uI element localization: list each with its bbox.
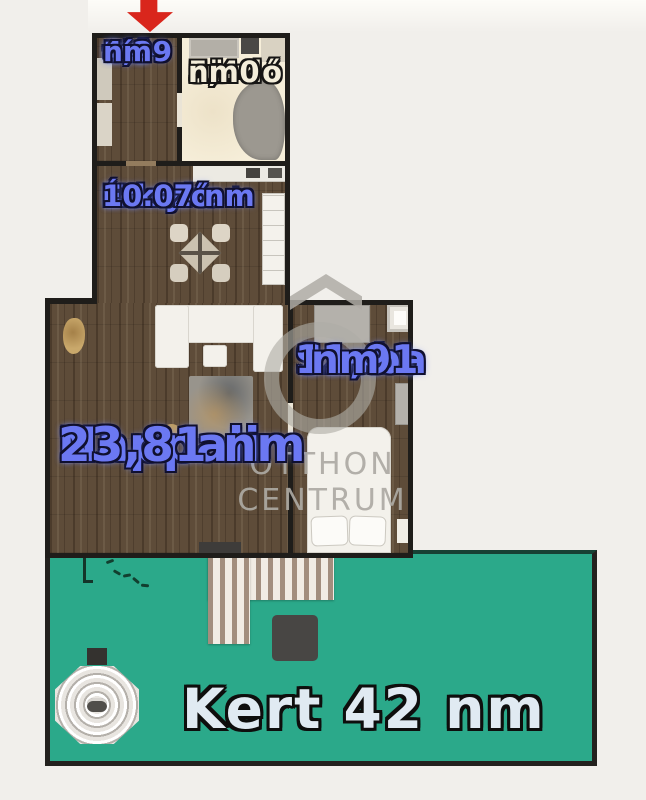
wall-right-upper [285,33,290,305]
fence-line [83,556,86,583]
dining-chair [170,264,188,282]
wall-left-upper [92,33,97,304]
awning-rug [208,556,250,644]
door-eloter-konyha [126,161,156,166]
washing-machine [241,38,259,54]
bathtub [233,80,285,160]
door-eloter-furdo [177,93,182,127]
label-konyha-line: 10.07 nm [102,180,255,214]
sofa-chaise [155,305,189,368]
tall-cabinet [262,193,285,285]
watermark-text-line2: CENTRUM [235,483,410,518]
fence-line [83,580,93,583]
parasol-base [87,648,107,665]
ottoman [203,345,227,367]
label-kert: Kert 42 nm [182,678,546,742]
label-szoba-line: nm [295,338,379,384]
background-highlight [88,0,646,32]
label-furdo-line: nm [188,56,239,90]
label-eloter-line: nm [103,36,152,68]
pillow [348,515,386,546]
floor-plan-canvas: OTTHON CENTRUM Elő- tér 4,29 nm Fürdő 5,… [0,0,646,800]
cooktop [246,168,260,178]
dining-chair [170,224,188,242]
pillow [310,515,348,546]
shrub-mark [141,584,149,588]
hall-cabinet [97,103,112,146]
cooktop [268,168,282,178]
dining-chair [212,224,230,242]
wall-ledge [45,298,97,304]
garden-table [272,615,318,661]
dining-chair [212,264,230,282]
label-nappali-line: 23,81 nm [58,418,305,474]
wall-left-lower [45,298,50,558]
wall-bottom [45,553,413,558]
radiator [395,383,409,425]
parasol-center [87,698,107,712]
wall-furdo-konyha [92,161,290,166]
